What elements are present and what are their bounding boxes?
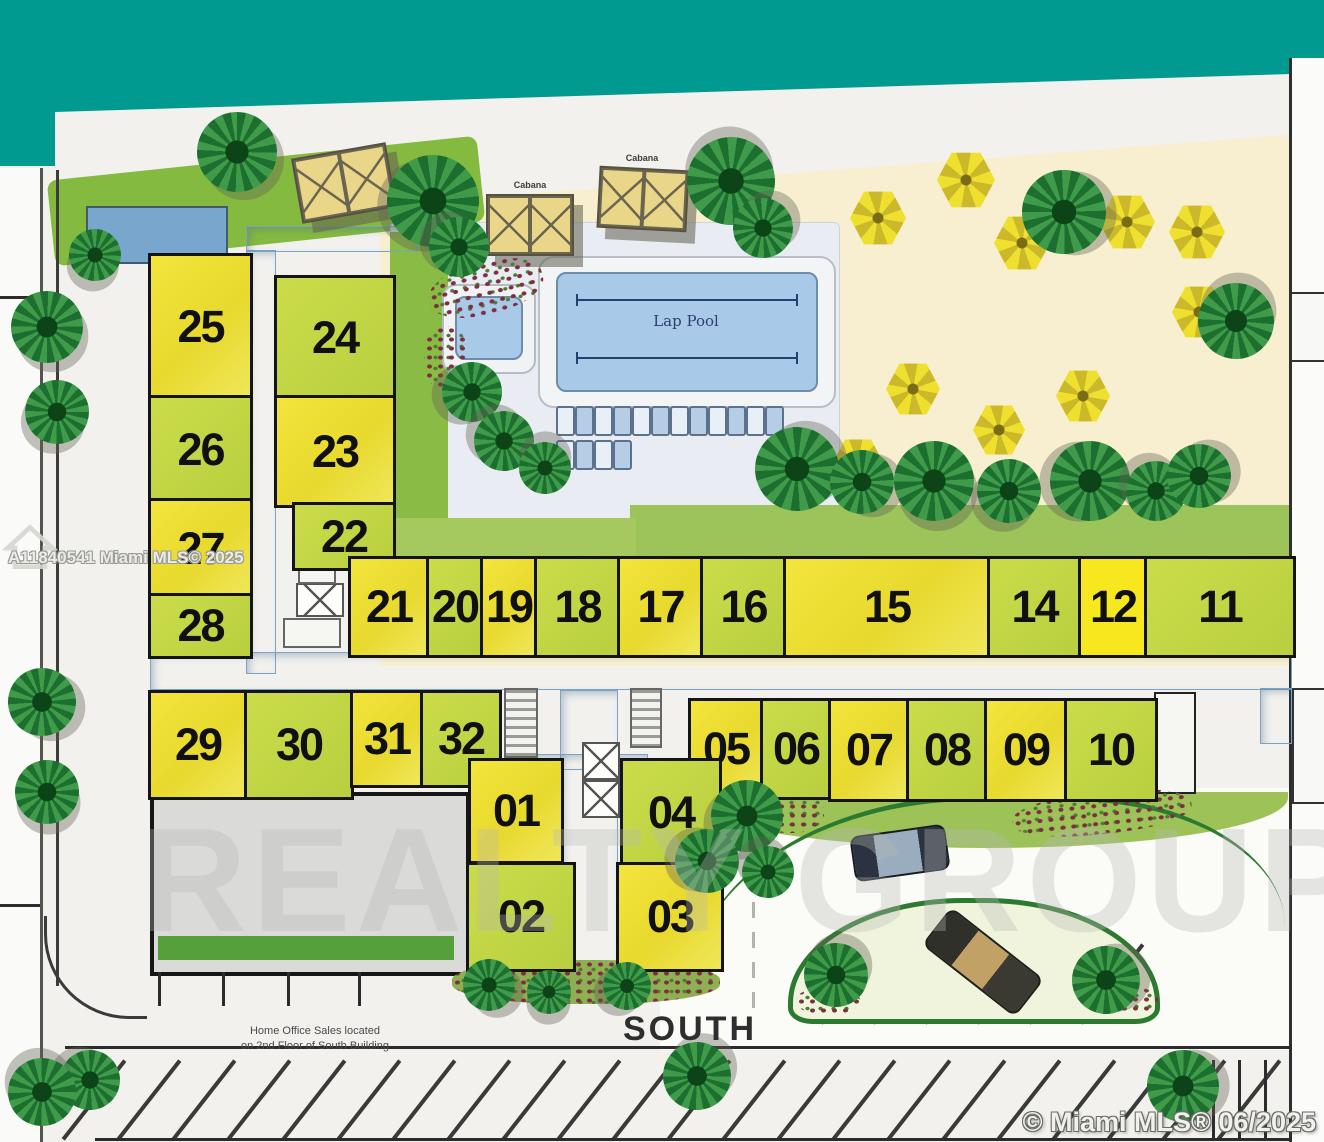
lounge-chair: [689, 406, 708, 436]
unit-box-21: 21: [348, 556, 430, 658]
parking-corner-arc: [44, 916, 147, 1019]
unit-box-20: 20: [426, 556, 484, 658]
unit-box-14: 14: [987, 556, 1082, 658]
green-strip-21: [396, 518, 636, 558]
elevator-box: [582, 742, 620, 780]
lounge-chair: [670, 406, 689, 436]
site-plan: 2526272824232221201918171615141211293031…: [0, 0, 1324, 1142]
unit-box-07: 07: [828, 698, 910, 802]
home-office-note-line2: on 2nd Floor of South Building: [190, 1039, 440, 1054]
lounge-chair: [727, 406, 746, 436]
lounge-chair: [594, 406, 613, 436]
lounge-chair: [575, 406, 594, 436]
unit-box-23: 23: [274, 395, 396, 508]
parking-stall-line: [887, 1059, 952, 1140]
road-marking: [0, 904, 40, 907]
unit-box-25: 25: [148, 253, 253, 401]
site-plan-scene: 2526272824232221201918171615141211293031…: [0, 0, 1324, 1142]
corridor-right-stub: [1260, 688, 1292, 744]
unit-box-28: 28: [148, 593, 253, 659]
home-office-note: Home Office Sales located on 2nd Floor o…: [190, 1024, 440, 1055]
elevator-box: [296, 583, 344, 617]
unit-box-30: 30: [244, 690, 354, 800]
lounge-chair: [556, 406, 575, 436]
parking-stall-line: [392, 1059, 457, 1140]
lounge-chair: [708, 406, 727, 436]
right-edge-box-2: [1292, 688, 1324, 804]
parking-stall-line: [337, 1059, 402, 1140]
unit-box-26: 26: [148, 395, 253, 504]
lounge-chair: [613, 406, 632, 436]
lounge-chair: [651, 406, 670, 436]
unit-box-09: 09: [984, 698, 1068, 802]
unit10-utility: [1154, 692, 1196, 794]
unit-box-12: 12: [1078, 556, 1148, 658]
road-marking: [158, 972, 161, 1006]
lounge-chair: [613, 440, 632, 470]
parking-stall-line: [282, 1059, 347, 1140]
unit-box-17: 17: [617, 556, 704, 658]
road-marking: [287, 972, 290, 1006]
right-road: [1292, 58, 1324, 1142]
stair-box: [630, 688, 662, 748]
parking-stall-line: [777, 1059, 842, 1140]
unit-box-24: 24: [274, 275, 396, 401]
unit-box-18: 18: [534, 556, 621, 658]
cabana: [486, 194, 574, 256]
stair-box: [504, 688, 538, 758]
parking-stall-line: [117, 1059, 182, 1140]
lounge-chair: [575, 440, 594, 470]
hedge-mid: [630, 505, 1292, 557]
watermark-mls-bottom-right: © Miami MLS® 06/2025: [1023, 1107, 1316, 1138]
unit-box-11: 11: [1144, 556, 1296, 658]
right-edge-box-1: [1290, 292, 1324, 362]
parking-stall-line: [502, 1059, 567, 1140]
watermark-mls-left: A11840541 Miami MLS© 2025: [8, 548, 244, 568]
parking-stall-line: [832, 1059, 897, 1140]
parking-stall-line: [942, 1059, 1007, 1140]
cabana-label: Cabana: [490, 180, 570, 190]
cabana-label: Cabana: [602, 153, 682, 163]
unit-box-06: 06: [760, 698, 832, 800]
lap-pool-label: Lap Pool: [596, 312, 776, 330]
road-marking: [358, 972, 361, 1006]
lounge-chair: [594, 440, 613, 470]
unit-box-08: 08: [906, 698, 988, 802]
parking-stall-line: [447, 1059, 512, 1140]
parking-stall-line: [557, 1059, 622, 1140]
road-marking: [95, 1138, 1292, 1141]
service-box: [283, 618, 341, 648]
unit-box-16: 16: [700, 556, 787, 658]
lounge-chair: [632, 406, 651, 436]
south-building-label: SOUTH: [580, 1010, 800, 1049]
corridor-nw-top: [246, 226, 418, 252]
palm-tree: [197, 112, 277, 192]
parking-stall-line: [172, 1059, 237, 1140]
lounge-chair: [746, 406, 765, 436]
home-office-note-line1: Home Office Sales located: [190, 1024, 440, 1039]
cabana: [596, 166, 689, 233]
unit-box-19: 19: [480, 556, 538, 658]
parking-stall-line: [722, 1059, 787, 1140]
parking-stall-line: [227, 1059, 292, 1140]
pool-dimension-line: [576, 352, 798, 364]
unit-box-29: 29: [148, 690, 248, 800]
lap-pool-water: [556, 272, 818, 392]
unit-box-10: 10: [1064, 698, 1158, 802]
unit-box-15: 15: [783, 556, 991, 658]
road-marking: [222, 972, 225, 1006]
watermark-realty-group: REALTY GROUP: [140, 796, 1324, 966]
pool-dimension-line: [576, 294, 798, 306]
unit-box-31: 31: [350, 690, 424, 788]
